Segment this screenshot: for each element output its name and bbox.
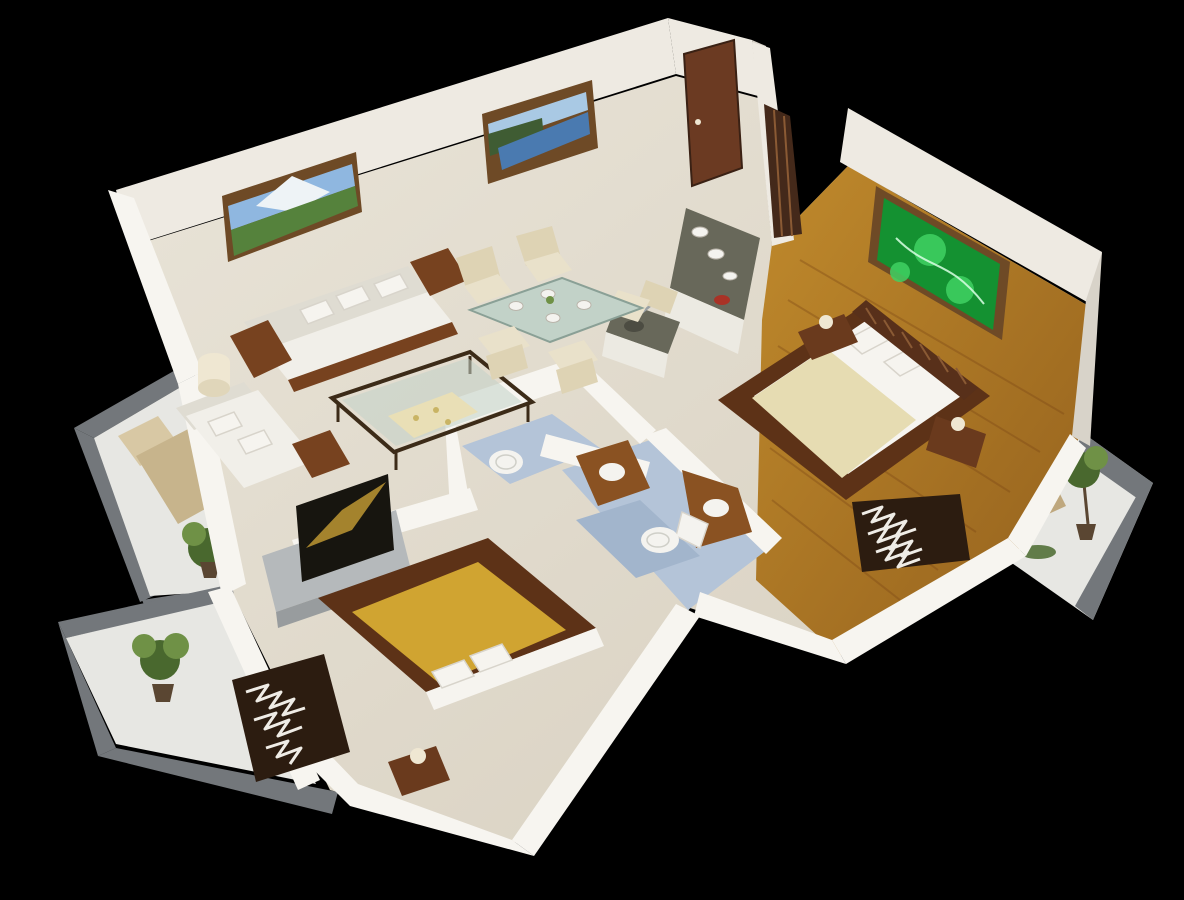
- flower-vase: [546, 296, 554, 304]
- floorplan-render-stage: [0, 0, 1184, 900]
- dish: [708, 249, 724, 259]
- runner-pattern: [413, 415, 419, 421]
- plant-leaves: [182, 522, 206, 546]
- dish: [723, 272, 737, 280]
- door-handle: [695, 119, 701, 125]
- bedside-lamp: [819, 315, 833, 329]
- plant-leaves: [132, 634, 156, 658]
- plate: [577, 301, 591, 310]
- kitchen-sink: [624, 320, 644, 332]
- bedside-lamp: [951, 417, 965, 431]
- dish: [692, 227, 708, 237]
- floorplan-3d-render: [0, 0, 1184, 900]
- round-sink: [599, 463, 625, 481]
- lamp-base: [198, 379, 230, 397]
- runner-pattern: [433, 407, 439, 413]
- tree-leaves: [1084, 446, 1108, 470]
- red-bowl: [714, 295, 730, 305]
- table-lamp-shade: [198, 353, 230, 371]
- painting-detail: [890, 262, 910, 282]
- entry-door: [684, 40, 742, 186]
- plant-leaves: [163, 633, 189, 659]
- runner-pattern: [445, 419, 451, 425]
- bedside-lamp: [410, 748, 426, 764]
- plate: [509, 302, 523, 311]
- round-sink: [703, 499, 729, 517]
- plate: [546, 314, 560, 323]
- round-toilet: [489, 450, 523, 474]
